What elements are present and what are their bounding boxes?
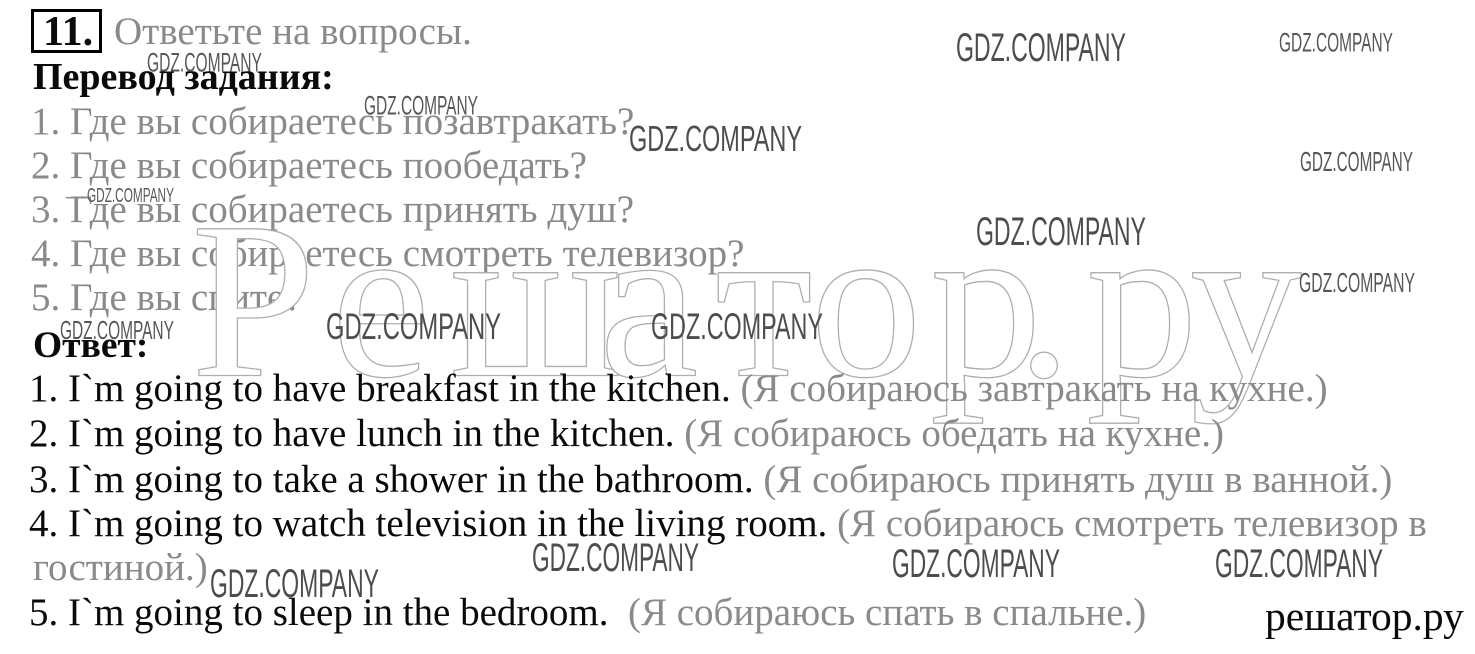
svg-text:GDZ.COMPANY: GDZ.COMPANY [629,120,802,159]
svg-text:GDZ.COMPANY: GDZ.COMPANY [1279,27,1393,58]
svg-text:GDZ.COMPANY: GDZ.COMPANY [210,561,379,605]
svg-text:GDZ.COMPANY: GDZ.COMPANY [1215,541,1383,585]
svg-text:GDZ.COMPANY: GDZ.COMPANY [147,47,262,78]
svg-text:GDZ.COMPANY: GDZ.COMPANY [1300,146,1413,177]
svg-text:GDZ.COMPANY: GDZ.COMPANY [651,305,823,347]
svg-text:GDZ.COMPANY: GDZ.COMPANY [976,210,1146,254]
svg-text:GDZ.COMPANY: GDZ.COMPANY [364,90,478,121]
svg-text:GDZ.COMPANY: GDZ.COMPANY [326,306,501,348]
svg-text:GDZ.COMPANY: GDZ.COMPANY [892,541,1060,585]
svg-text:GDZ.COMPANY: GDZ.COMPANY [956,26,1126,70]
svg-text:GDZ.COMPANY: GDZ.COMPANY [1299,267,1415,298]
svg-text:GDZ.COMPANY: GDZ.COMPANY [532,535,699,579]
svg-text:GDZ.COMPANY: GDZ.COMPANY [60,316,174,345]
svg-text:GDZ.COMPANY: GDZ.COMPANY [87,185,174,207]
